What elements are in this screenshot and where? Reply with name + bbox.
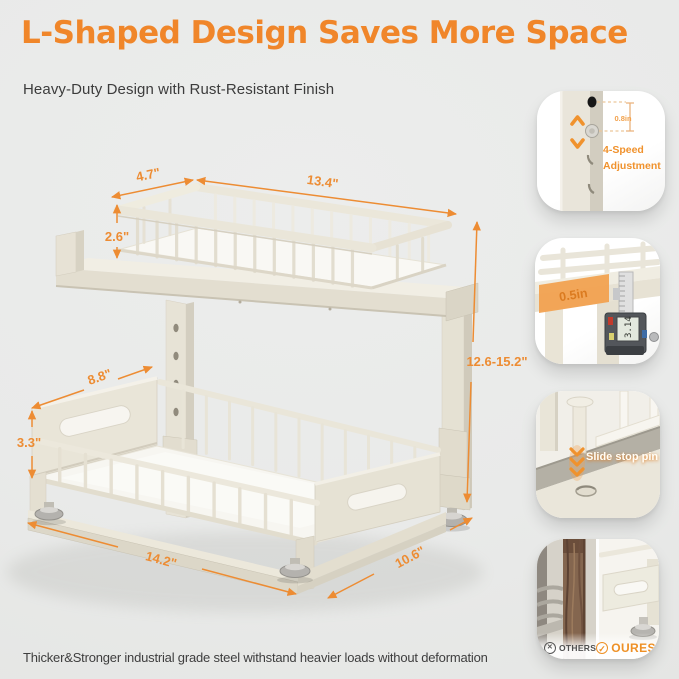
caliper-reading: 3.14	[624, 316, 634, 338]
dim-basket-height: 2.6"	[105, 229, 129, 244]
hole-spacing-label: 0.8in	[614, 114, 632, 123]
stop-pin-photo: Slide stop pin	[536, 391, 660, 518]
others-group: ✕ OTHERS	[544, 642, 596, 654]
check-circle-icon: ✓	[596, 642, 608, 654]
dim-panel-depth: 8.8"	[86, 366, 114, 388]
others-label: OTHERS	[559, 643, 596, 653]
post-hole	[588, 97, 597, 108]
footer-note: Thicker&Stronger industrial grade steel …	[23, 650, 488, 665]
ours-label: OURES	[611, 641, 656, 655]
callout-slide-stop-pin: Slide stop pin	[536, 391, 660, 518]
callout-steel-thickness: 0.5in 3.14	[535, 238, 660, 364]
x-circle-icon: ✕	[544, 642, 556, 654]
callout-4-speed-adjustment: 0.8in 4-Speed Adjustment	[537, 91, 665, 211]
dim-top-width: 13.4"	[306, 172, 339, 191]
dim-panel-height: 3.3"	[17, 435, 41, 450]
ours-group: ✓ OURES	[596, 641, 656, 655]
product-infographic: { "page": { "title": "L-Shaped Design Sa…	[0, 0, 679, 679]
callout-rust-comparison: ✕ OTHERS ✓ OURES	[537, 539, 659, 659]
page-title: L-Shaped Design Saves More Space	[21, 15, 628, 51]
rack-diagram: 4.7" 13.4" 2.6" 8.8" 3.3" 14.2" 10.6" 12…	[0, 130, 545, 640]
dim-top-depth: 4.7"	[135, 165, 162, 185]
stop-pin-label: Slide stop pin	[586, 451, 658, 463]
dim-overall-height: 12.6-15.2"	[466, 354, 527, 369]
page-subtitle: Heavy-Duty Design with Rust-Resistant Fi…	[23, 81, 334, 98]
dim-line-panel-depth	[118, 367, 152, 379]
comparison-labels: ✕ OTHERS ✓ OURES	[537, 641, 659, 655]
caliper-photo: 0.5in 3.14	[535, 238, 660, 364]
lower-basket	[32, 378, 440, 543]
adjustment-label: 4-Speed Adjustment	[603, 143, 663, 175]
dim-line-overall-height	[473, 222, 477, 342]
